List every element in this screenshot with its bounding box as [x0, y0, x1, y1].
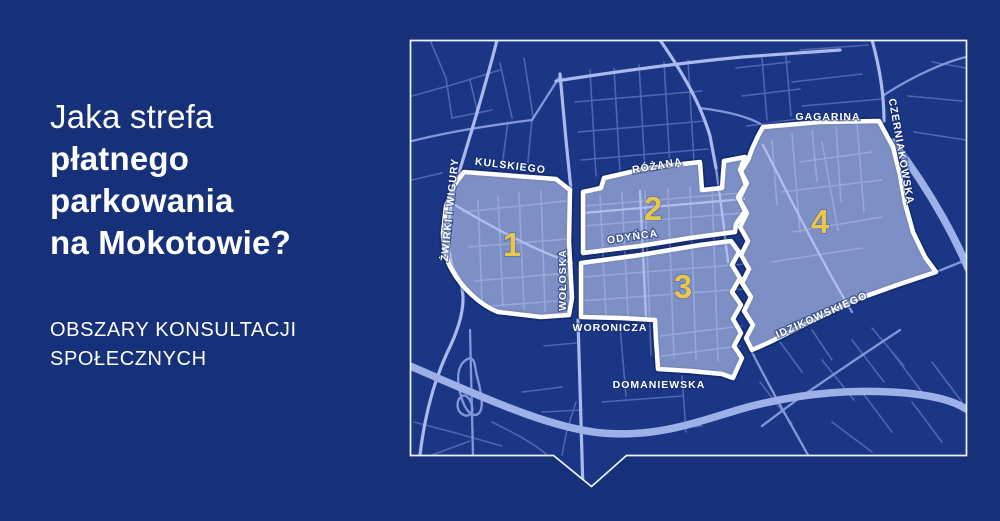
street-label-gagarina: GAGARINA [795, 111, 860, 123]
parking-zones-infographic: Jaka strefa płatnego parkowania na Mokot… [0, 0, 1000, 521]
zone-4-number: 4 [811, 203, 830, 240]
zone-2-number: 2 [644, 190, 662, 227]
street-label-domaniewska: DOMANIEWSKA [613, 379, 706, 391]
zone-3-number: 3 [674, 268, 692, 305]
street-label-woloska: WOŁOSKA [557, 249, 569, 311]
street-label-woronicza: WORONICZA [573, 322, 648, 334]
mokotow-map: ŻWIRKI I WIGURY KULSKIEGO RÓŻANA ODYŃCA … [0, 0, 1000, 521]
zone-1-number: 1 [503, 226, 521, 263]
